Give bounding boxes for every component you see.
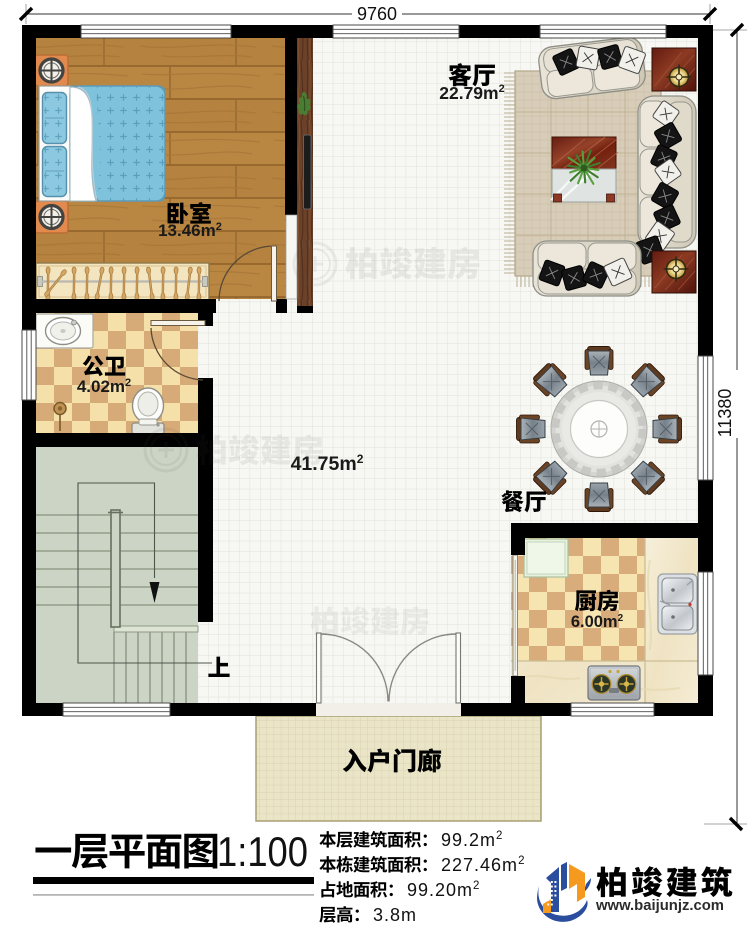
svg-text:www.baijunjz.com: www.baijunjz.com <box>595 898 724 914</box>
svg-text:11380: 11380 <box>715 389 735 438</box>
svg-text:3.8m: 3.8m <box>373 905 417 925</box>
svg-text:9760: 9760 <box>357 4 397 24</box>
svg-text:99.2m2: 99.2m2 <box>441 830 503 850</box>
svg-text:227.46m2: 227.46m2 <box>441 855 525 875</box>
svg-text:13.46m2: 13.46m2 <box>158 221 222 240</box>
svg-text:4.02m2: 4.02m2 <box>77 377 131 396</box>
svg-text:22.79m2: 22.79m2 <box>439 83 504 103</box>
svg-text:6.00m2: 6.00m2 <box>571 613 624 631</box>
svg-text:1:100: 1:100 <box>217 828 308 875</box>
svg-text:99.20m2: 99.20m2 <box>407 880 480 900</box>
